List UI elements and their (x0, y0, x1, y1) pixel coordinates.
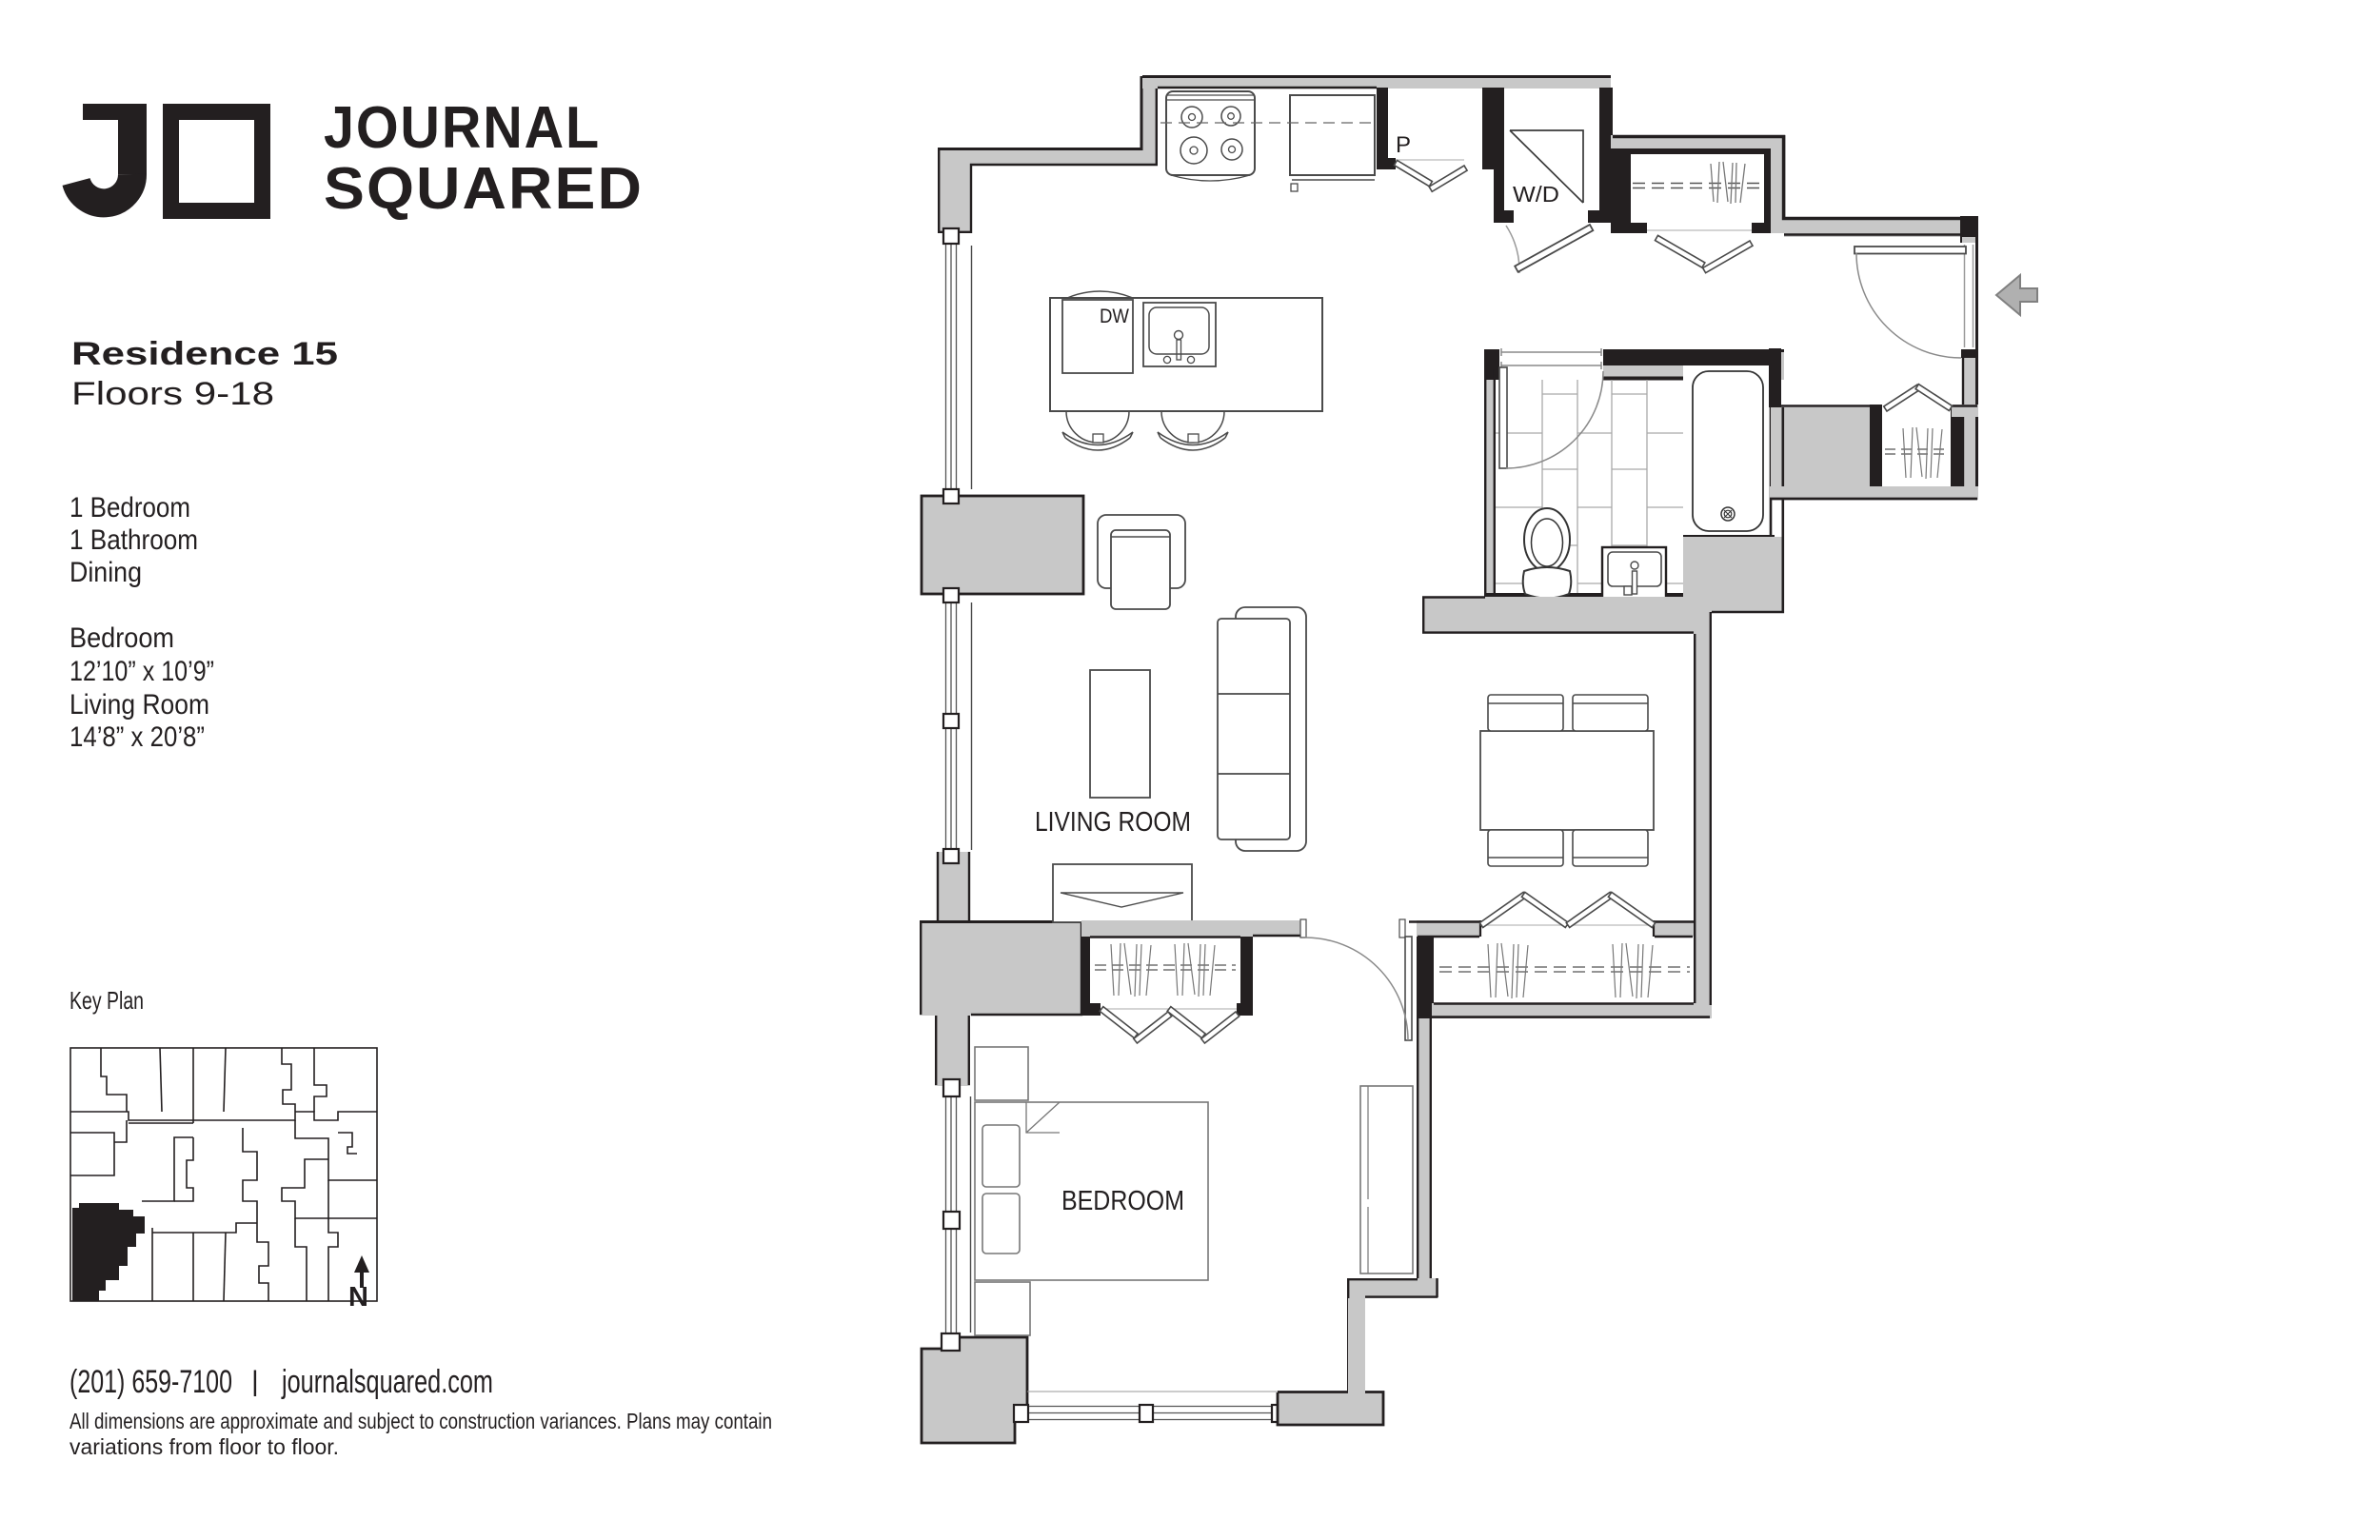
svg-text:1 Bedroom: 1 Bedroom (69, 492, 190, 523)
svg-text:(201) 659-7100: (201) 659-7100 (69, 1364, 232, 1400)
svg-text:1 Bathroom: 1 Bathroom (69, 524, 198, 556)
svg-text:14’8” x 20’8”: 14’8” x 20’8” (69, 721, 205, 753)
svg-text:journalsquared.com: journalsquared.com (281, 1364, 493, 1400)
svg-text:JOURNAL: JOURNAL (324, 95, 601, 161)
svg-text:Dining: Dining (69, 557, 142, 588)
svg-text:W/D: W/D (1513, 182, 1559, 207)
svg-text:Living Room: Living Room (69, 689, 209, 721)
svg-text:All dimensions are approximate: All dimensions are approximate and subje… (69, 1409, 772, 1433)
svg-text:Residence 15: Residence 15 (71, 336, 338, 372)
svg-text:BEDROOM: BEDROOM (1061, 1186, 1184, 1216)
svg-text:variations from floor to floor: variations from floor to floor. (69, 1434, 339, 1459)
svg-text:Key Plan: Key Plan (69, 986, 144, 1015)
svg-text:P: P (1396, 132, 1411, 158)
svg-text:DW: DW (1100, 306, 1129, 327)
svg-text:|: | (251, 1366, 259, 1397)
svg-text:Floors 9-18: Floors 9-18 (71, 376, 274, 412)
svg-text:N: N (348, 1282, 368, 1313)
svg-text:Bedroom: Bedroom (69, 622, 174, 654)
svg-text:LIVING ROOM: LIVING ROOM (1035, 807, 1191, 838)
svg-text:SQUARED: SQUARED (324, 156, 644, 222)
svg-text:12’10” x 10’9”: 12’10” x 10’9” (69, 656, 214, 687)
